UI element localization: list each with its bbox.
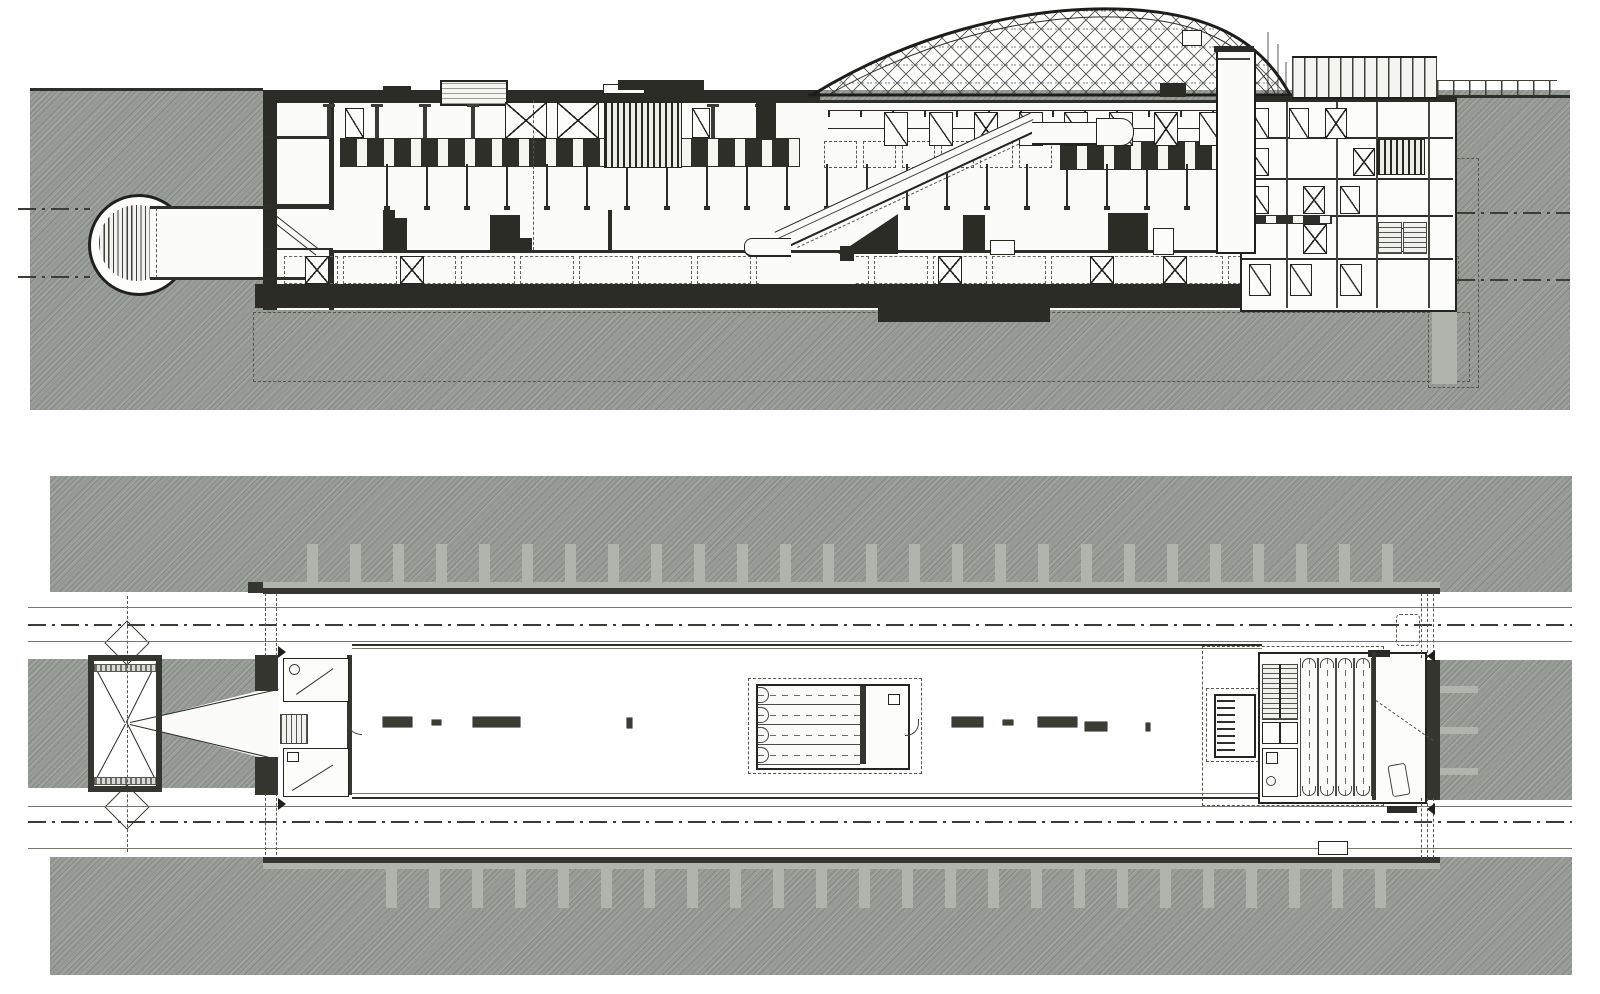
- counterfort-rib: [730, 864, 741, 908]
- rail-line-dn-1: [28, 806, 1572, 807]
- east-stair-a: [1378, 222, 1402, 254]
- east-room-cabinet: [1266, 752, 1278, 764]
- under-platform-door: [400, 256, 424, 284]
- counterfort-rib: [687, 864, 698, 908]
- counterfort-rib: [558, 864, 569, 908]
- shaft-diag-2: [126, 664, 156, 723]
- counterfort-rib: [1332, 864, 1343, 908]
- lift-shaft-tower: [1216, 50, 1256, 254]
- counterfort-rib: [988, 864, 999, 908]
- east-lift-c: [1303, 186, 1325, 214]
- east-portal-joint-5: [1427, 798, 1428, 858]
- ceiling-hanger-rod: [826, 164, 828, 206]
- counterfort-rib-east: [1440, 686, 1478, 693]
- ground-line-left: [30, 88, 263, 91]
- concourse-door-east: [884, 112, 908, 146]
- ceiling-hanger-rod: [506, 164, 508, 206]
- base-slab-sump: [878, 308, 1050, 322]
- median-hatch-west-a: [28, 659, 92, 788]
- coffer-band-west: [340, 138, 800, 167]
- escalator-lane: [1354, 658, 1372, 796]
- under-platform-door: [305, 256, 329, 284]
- counterfort-rib: [945, 864, 956, 908]
- ceiling-hanger-rod: [546, 164, 548, 206]
- counterfort-rib: [479, 544, 490, 588]
- escalator-machine-box: [1096, 118, 1134, 146]
- counterfort-rib: [780, 544, 791, 588]
- platform-object-dark: [520, 238, 532, 250]
- counterfort-rib: [694, 544, 705, 588]
- platform-object-dark: [963, 215, 985, 253]
- ceiling-hanger-rod: [986, 164, 988, 206]
- ceiling-hanger-rod: [1106, 164, 1108, 206]
- cross-brace-2: [557, 102, 599, 139]
- under-platform-duct-panel: [992, 256, 1046, 284]
- escalator-hall-pier: [756, 100, 776, 140]
- signal-cabinet-dashed: [1396, 614, 1420, 646]
- concourse-door-east: [929, 112, 953, 146]
- lift-tower-line: [1218, 58, 1250, 60]
- ceiling-hanger-rod: [466, 164, 468, 206]
- counterfort-rib: [866, 544, 877, 588]
- east-floor-4: [1241, 258, 1453, 260]
- escalator-block-fixture: [888, 694, 900, 705]
- platform-kiosk: [1153, 228, 1174, 255]
- escalator-lane: [758, 706, 860, 725]
- platform-edge-dn-heavy: [352, 797, 1262, 799]
- under-platform-duct-panel: [697, 256, 751, 284]
- east-portal-joint-4: [1421, 798, 1422, 858]
- edge-bench-se: [1387, 806, 1417, 813]
- shaft-wall-right: [156, 655, 162, 792]
- counterfort-rib: [909, 544, 920, 588]
- counterfort-rib: [1038, 544, 1049, 588]
- counterfort-rib: [859, 864, 870, 908]
- counterfort-rib: [651, 544, 662, 588]
- ceiling-hanger-rod: [666, 164, 668, 206]
- platform-plan-panel: [0, 440, 1600, 994]
- under-platform-duct-panel: [1110, 256, 1164, 284]
- escalator-lane: [758, 746, 860, 765]
- earth-hatch-plan-bottom: [50, 857, 1572, 975]
- counterfort-rib-east: [1440, 727, 1478, 734]
- concourse-column: [327, 104, 331, 138]
- counterfort-rib: [773, 864, 784, 908]
- counterfort-rib: [1382, 544, 1393, 588]
- east-stair-rail: [1279, 664, 1281, 718]
- east-wall-1: [1286, 102, 1288, 308]
- under-platform-duct-panel: [343, 256, 397, 284]
- counterfort-rib: [1160, 864, 1171, 908]
- track-centerline-up: [28, 624, 1572, 626]
- counterfort-rib: [515, 864, 526, 908]
- roof-plant-block: [618, 80, 704, 90]
- gate-bars: [1217, 697, 1235, 751]
- escalator-upper-landing: [1032, 122, 1098, 145]
- retaining-wall-top: [263, 588, 1440, 594]
- counterfort-rib: [1031, 864, 1042, 908]
- platform-end-marker-sw: [278, 798, 286, 810]
- east-portal-joint-2: [1427, 593, 1428, 658]
- escalator-lane: [1318, 658, 1336, 796]
- foundation-outline-dashed: [253, 312, 1470, 382]
- west-corner-pier: [248, 582, 263, 593]
- platform-end-marker-se: [1427, 803, 1435, 815]
- counterfort-rib: [1117, 864, 1128, 908]
- escalator-block-divider: [860, 686, 866, 764]
- platform-bench: [627, 718, 632, 728]
- east-lift-2: [1280, 722, 1298, 744]
- shaft-cap-top: [88, 655, 162, 661]
- platform-kiosk: [990, 240, 1015, 255]
- west-portal-joint-1: [265, 593, 266, 656]
- east-wall-4: [1428, 102, 1430, 308]
- counterfort-rib: [1203, 864, 1214, 908]
- shaft-diag-4: [126, 723, 156, 782]
- east-wall-3: [1376, 102, 1378, 308]
- counterfort-rib: [1124, 544, 1135, 588]
- east-lift-d: [1303, 224, 1327, 254]
- platform-bench: [1146, 723, 1150, 731]
- track-projection-right-upper: [1457, 212, 1570, 214]
- concourse-door-west-2: [692, 108, 710, 138]
- concourse-door-west-1: [345, 108, 364, 138]
- concourse-column: [711, 104, 715, 138]
- counterfort-rib: [386, 864, 397, 908]
- counterfort-rib: [608, 544, 619, 588]
- counterfort-rib: [902, 864, 913, 908]
- east-portal-joint-1: [1421, 593, 1422, 658]
- east-core-divider: [1372, 652, 1376, 800]
- platform-bench: [1085, 722, 1107, 731]
- platform-edge-up-thin: [352, 648, 1262, 649]
- surface-plant-block: [1160, 83, 1186, 97]
- west-portal-joint-3: [265, 793, 266, 855]
- platform-object-dark: [383, 218, 407, 250]
- east-lift-a: [1325, 108, 1347, 139]
- concourse-door-east: [1154, 112, 1178, 146]
- west-room-cabinet: [287, 752, 299, 762]
- ceiling-hanger-rod: [786, 164, 788, 206]
- roof-curb: [383, 86, 411, 91]
- lift-tower-cap: [1214, 46, 1254, 52]
- under-platform-door: [1090, 256, 1114, 284]
- scanned-drawing-sheet: [0, 0, 1600, 994]
- track-projection-right-lower: [1457, 279, 1570, 281]
- counterfort-rib: [1167, 544, 1178, 588]
- counterfort-rib: [816, 864, 827, 908]
- west-headwall-lower: [255, 757, 278, 795]
- track-centerline-dn: [28, 821, 1572, 823]
- counterfort-rib: [436, 544, 447, 588]
- counterfort-rib: [601, 864, 612, 908]
- concourse-column: [423, 104, 427, 138]
- west-headwall-upper: [255, 655, 278, 691]
- shaft-cap-bottom: [88, 786, 162, 792]
- counterfort-rib: [522, 544, 533, 588]
- counterfort-rib: [1074, 864, 1085, 908]
- track-equipment-box: [1318, 841, 1348, 855]
- rooflight-box: [440, 80, 508, 106]
- counterfort-rib: [565, 544, 576, 588]
- concourse-column: [471, 104, 475, 138]
- east-louvre: [1377, 139, 1425, 175]
- counterfort-rib: [393, 544, 404, 588]
- escalator-lane: [758, 686, 860, 705]
- left-rooms-floor-1: [263, 136, 333, 139]
- east-lift-1: [1262, 722, 1280, 744]
- ceiling-hanger-rod: [1026, 164, 1028, 206]
- wc-fixture-circle: [289, 664, 300, 675]
- counterfort-rib-east: [1440, 768, 1478, 775]
- counterfort-rib: [1246, 864, 1257, 908]
- west-portal-joint-4: [276, 793, 277, 855]
- escalator-lane: [1336, 658, 1354, 796]
- counterfort-rib: [1210, 544, 1221, 588]
- counterfort-rib: [995, 544, 1006, 588]
- counterfort-rib: [1289, 864, 1300, 908]
- platform-bench: [1038, 717, 1077, 727]
- counterfort-rib: [429, 864, 440, 908]
- ceiling-hanger-rod: [626, 164, 628, 206]
- ceiling-hanger-rod: [1186, 164, 1188, 206]
- under-platform-duct-panel: [579, 256, 633, 284]
- ceiling-hanger-rod: [386, 164, 388, 206]
- platform-end-marker-nw: [278, 646, 286, 658]
- ceiling-hanger-rod: [586, 164, 588, 206]
- platform-edge-up-heavy: [352, 644, 1262, 646]
- counterfort-rib: [350, 544, 361, 588]
- platform-object-dark: [608, 210, 612, 250]
- escalator-lower-landing: [744, 238, 791, 257]
- counterfort-rib: [1081, 544, 1092, 588]
- platform-object-dark: [1108, 213, 1148, 253]
- east-mini-coffer: [1249, 215, 1332, 224]
- platform-edge-dn-thin: [352, 793, 1262, 794]
- west-portal-joint-2: [276, 593, 277, 656]
- ceiling-hanger-rod: [746, 164, 748, 206]
- grid-joint-line: [533, 100, 534, 250]
- counterfort-rib: [1296, 544, 1307, 588]
- escalator-lane: [1300, 658, 1318, 796]
- louvre-panel: [604, 102, 682, 168]
- under-platform-door: [938, 256, 962, 284]
- platform-bench: [432, 720, 441, 725]
- rail-line-up-2: [28, 641, 1572, 642]
- platform-bench: [383, 717, 412, 727]
- platform-bench: [473, 717, 520, 727]
- platform-bench: [952, 717, 983, 727]
- platform-bench: [1003, 720, 1013, 725]
- east-floor-2: [1241, 178, 1453, 180]
- east-door-b: [1289, 108, 1309, 139]
- counterfort-rib: [1339, 544, 1350, 588]
- under-platform-duct-panel: [874, 256, 928, 284]
- shaft-diag-3: [94, 724, 126, 783]
- entrance-pavilion: [1292, 56, 1437, 99]
- east-stair-b: [1403, 222, 1427, 254]
- east-door-g: [1290, 264, 1312, 296]
- counterfort-rib: [1253, 544, 1264, 588]
- retaining-wall-bottom: [263, 857, 1440, 863]
- ceiling-hanger-rod: [426, 164, 428, 206]
- left-rooms-floor-3: [263, 248, 333, 250]
- under-platform-duct-panel: [520, 256, 574, 284]
- tunnel-axis-projection-upper: [18, 208, 90, 210]
- ceiling-hanger-rod: [706, 164, 708, 206]
- dashed-ceiling-bay: [824, 141, 857, 168]
- shaft-wall-left: [88, 655, 94, 792]
- east-door-f: [1249, 264, 1271, 296]
- east-door-e: [1340, 186, 1360, 214]
- east-door-h: [1340, 264, 1362, 296]
- cross-brace-1: [505, 102, 547, 139]
- escalator-lane: [758, 726, 860, 745]
- surface-railing: [1437, 80, 1557, 96]
- dome-vent-box: [1182, 30, 1202, 46]
- tunnel-axis-projection-lower: [18, 276, 90, 278]
- counterfort-rib: [1375, 864, 1386, 908]
- tunnel-crown-line: [150, 206, 334, 209]
- counterfort-rib: [472, 864, 483, 908]
- east-lift-b: [1353, 148, 1375, 176]
- platform-object-dark: [490, 215, 520, 250]
- counterfort-rib: [644, 864, 655, 908]
- shaft-diag-1: [93, 664, 125, 723]
- rail-line-up-1: [28, 607, 1572, 608]
- east-room-fixture-circle: [1266, 776, 1276, 786]
- under-platform-door: [1163, 256, 1187, 284]
- counterfort-rib: [307, 544, 318, 588]
- platform-object-dark: [383, 210, 395, 218]
- ceiling-hanger-rod: [1146, 164, 1148, 206]
- counterfort-rib: [952, 544, 963, 588]
- concourse-column: [375, 104, 379, 138]
- under-platform-duct-panel: [461, 256, 515, 284]
- under-platform-duct-panel: [638, 256, 692, 284]
- counterfort-rib: [823, 544, 834, 588]
- east-portal-joint-3: [1433, 593, 1434, 658]
- ceiling-hanger-rod: [1066, 164, 1068, 206]
- tunnel-portal-joint: [156, 208, 157, 278]
- counterfort-rib: [737, 544, 748, 588]
- west-stair: [280, 714, 308, 744]
